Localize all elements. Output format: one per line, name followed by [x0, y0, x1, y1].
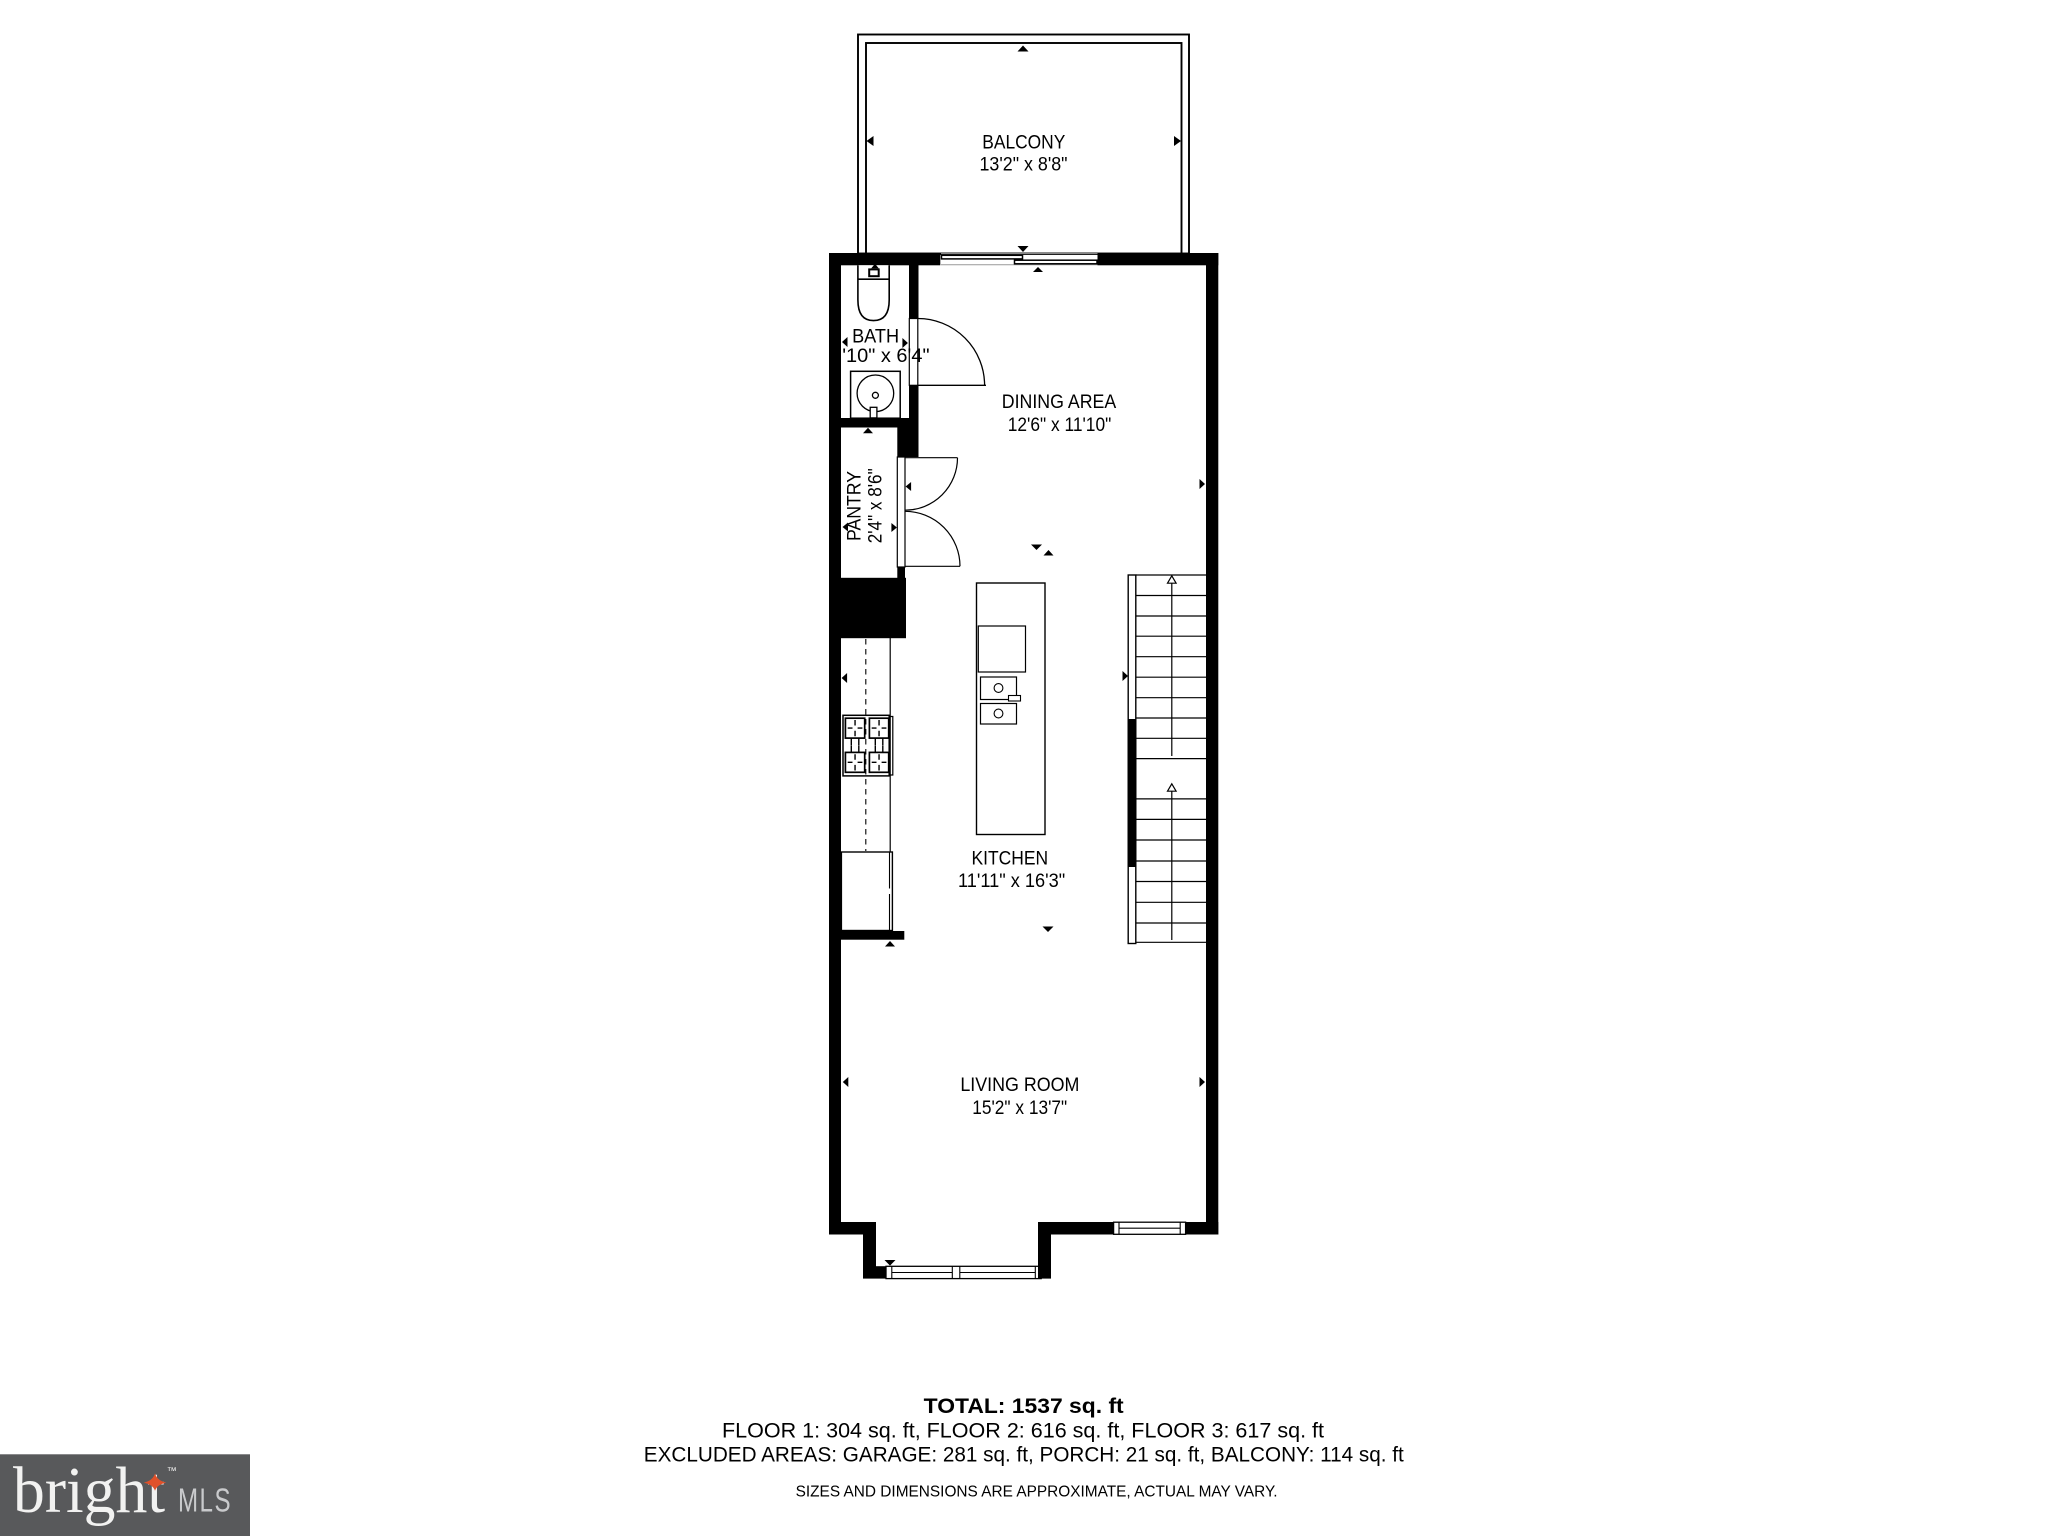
svg-text:FLOOR 1: 304 sq. ft, FLOOR 2:: FLOOR 1: 304 sq. ft, FLOOR 2: 616 sq. ft…	[722, 1420, 1324, 1443]
svg-text:15'2" x 13'7": 15'2" x 13'7"	[972, 1097, 1067, 1119]
svg-text:SIZES AND DIMENSIONS ARE APPRO: SIZES AND DIMENSIONS ARE APPROXIMATE, AC…	[796, 1484, 1278, 1501]
svg-text:BALCONY: BALCONY	[982, 132, 1065, 154]
svg-text:™: ™	[167, 1466, 177, 1477]
svg-text:MLS: MLS	[178, 1482, 232, 1519]
svg-text:13'2" x 8'8": 13'2" x 8'8"	[980, 154, 1068, 176]
svg-text:'10" x 6'4": '10" x 6'4"	[842, 345, 929, 367]
svg-text:KITCHEN: KITCHEN	[972, 848, 1049, 870]
svg-text:TOTAL: 1537 sq. ft: TOTAL: 1537 sq. ft	[924, 1395, 1124, 1418]
svg-text:LIVING ROOM: LIVING ROOM	[960, 1074, 1079, 1096]
svg-text:11'11" x 16'3": 11'11" x 16'3"	[958, 870, 1065, 892]
svg-text:bright: bright	[13, 1454, 165, 1527]
svg-text:2'4" x 8'6": 2'4" x 8'6"	[865, 468, 887, 543]
svg-text:EXCLUDED AREAS: GARAGE: 281 sq: EXCLUDED AREAS: GARAGE: 281 sq. ft, PORC…	[644, 1444, 1404, 1467]
svg-text:DINING AREA: DINING AREA	[1002, 391, 1117, 413]
svg-text:12'6" x 11'10": 12'6" x 11'10"	[1008, 414, 1112, 436]
svg-text:BATH: BATH	[852, 325, 899, 347]
